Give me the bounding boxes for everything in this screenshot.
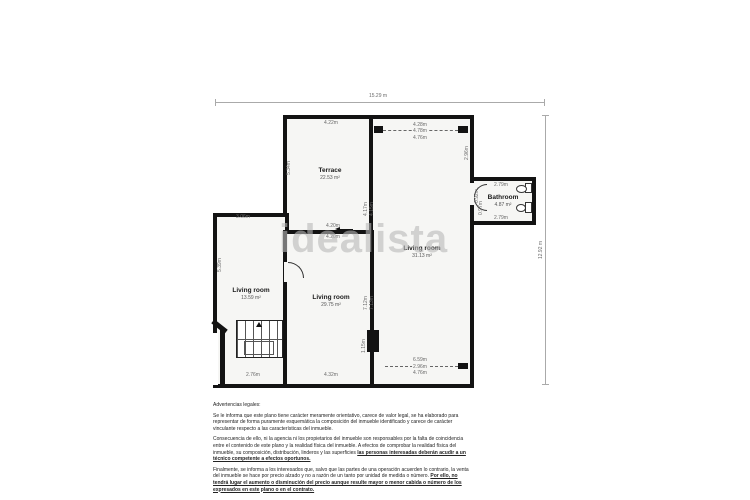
dim-label: 2.96m <box>464 146 470 160</box>
wall-notch-patch <box>213 333 218 385</box>
room-area: 4.87 m² <box>488 202 519 208</box>
dim-label: 0.97m <box>478 201 484 215</box>
opening-stub <box>458 363 468 369</box>
stairs-direction-arrow-icon <box>256 322 262 327</box>
dim-label: 4.22m <box>324 120 338 126</box>
legal-title: Advertencias legales: <box>213 402 469 409</box>
overall-width-label: 15.29 m <box>369 93 387 99</box>
opening-stub <box>374 126 383 133</box>
room-name: Bathroom <box>488 194 519 202</box>
toilet-cistern-icon <box>525 202 532 213</box>
dim-label: 1.15m <box>361 339 367 353</box>
dim-label: 2.79m <box>494 215 508 221</box>
room-area: 13.59 m² <box>232 295 269 301</box>
legal-paragraph: Se le informa que este plano tiene carác… <box>213 413 469 433</box>
overall-height-dim-line <box>545 115 546 385</box>
idealista-watermark: idealista <box>279 219 448 259</box>
opening-stub <box>458 126 468 133</box>
dim-label: 4.32m <box>324 372 338 378</box>
dim-label: 5.39m <box>217 258 223 272</box>
living-left-label: Living room 13.59 m² <box>232 287 269 301</box>
dim-label: 4.76m <box>413 370 427 376</box>
bathroom-label: Bathroom 4.87 m² <box>488 194 519 208</box>
dim-label: 4.78m <box>412 128 428 134</box>
dim-label: 3.06m <box>236 214 250 220</box>
room-name: Living room <box>232 287 269 295</box>
dim-label: 4.76m <box>413 135 427 141</box>
terrace-label: Terrace 22.53 m² <box>318 167 341 181</box>
dim-label: 6.59m <box>413 357 427 363</box>
legal-disclaimer: Advertencias legales: Se le informa que … <box>213 402 469 497</box>
room-name: Living room <box>312 294 349 302</box>
floor-plan-page: 15.29 m 12.92 m 4.28m 4.78m 4.76m 6.59m … <box>0 0 750 500</box>
room-name: Terrace <box>318 167 341 175</box>
dim-tick <box>544 99 545 106</box>
wall-notch-inset <box>220 330 225 388</box>
overall-width-dim-line <box>215 102 545 103</box>
overall-height-label: 12.92 m <box>538 241 544 259</box>
stairs-inner-flight <box>244 341 274 355</box>
room-area: 29.75 m² <box>312 302 349 308</box>
wall-pillar <box>367 330 379 352</box>
stairs-landing-line <box>237 339 282 340</box>
legal-text: Se le informa que este plano tiene carác… <box>213 413 458 432</box>
living-center-label: Living room 29.75 m² <box>312 294 349 308</box>
dim-tick <box>215 99 216 106</box>
dim-label: 5.34m <box>286 161 292 175</box>
room-area: 22.53 m² <box>318 175 341 181</box>
dim-tick <box>542 384 549 385</box>
dim-label: 2.79m <box>494 182 508 188</box>
dim-label: 7.13m <box>369 296 375 310</box>
legal-paragraph: Finalmente, se informa a los interesados… <box>213 467 469 493</box>
sink-icon <box>516 185 527 193</box>
dim-label: 4.15m <box>369 202 375 216</box>
legal-paragraph: Consecuencia de ello, ni la agencia ni l… <box>213 436 469 462</box>
dim-label: 2.76m <box>246 372 260 378</box>
dim-tick <box>542 115 549 116</box>
